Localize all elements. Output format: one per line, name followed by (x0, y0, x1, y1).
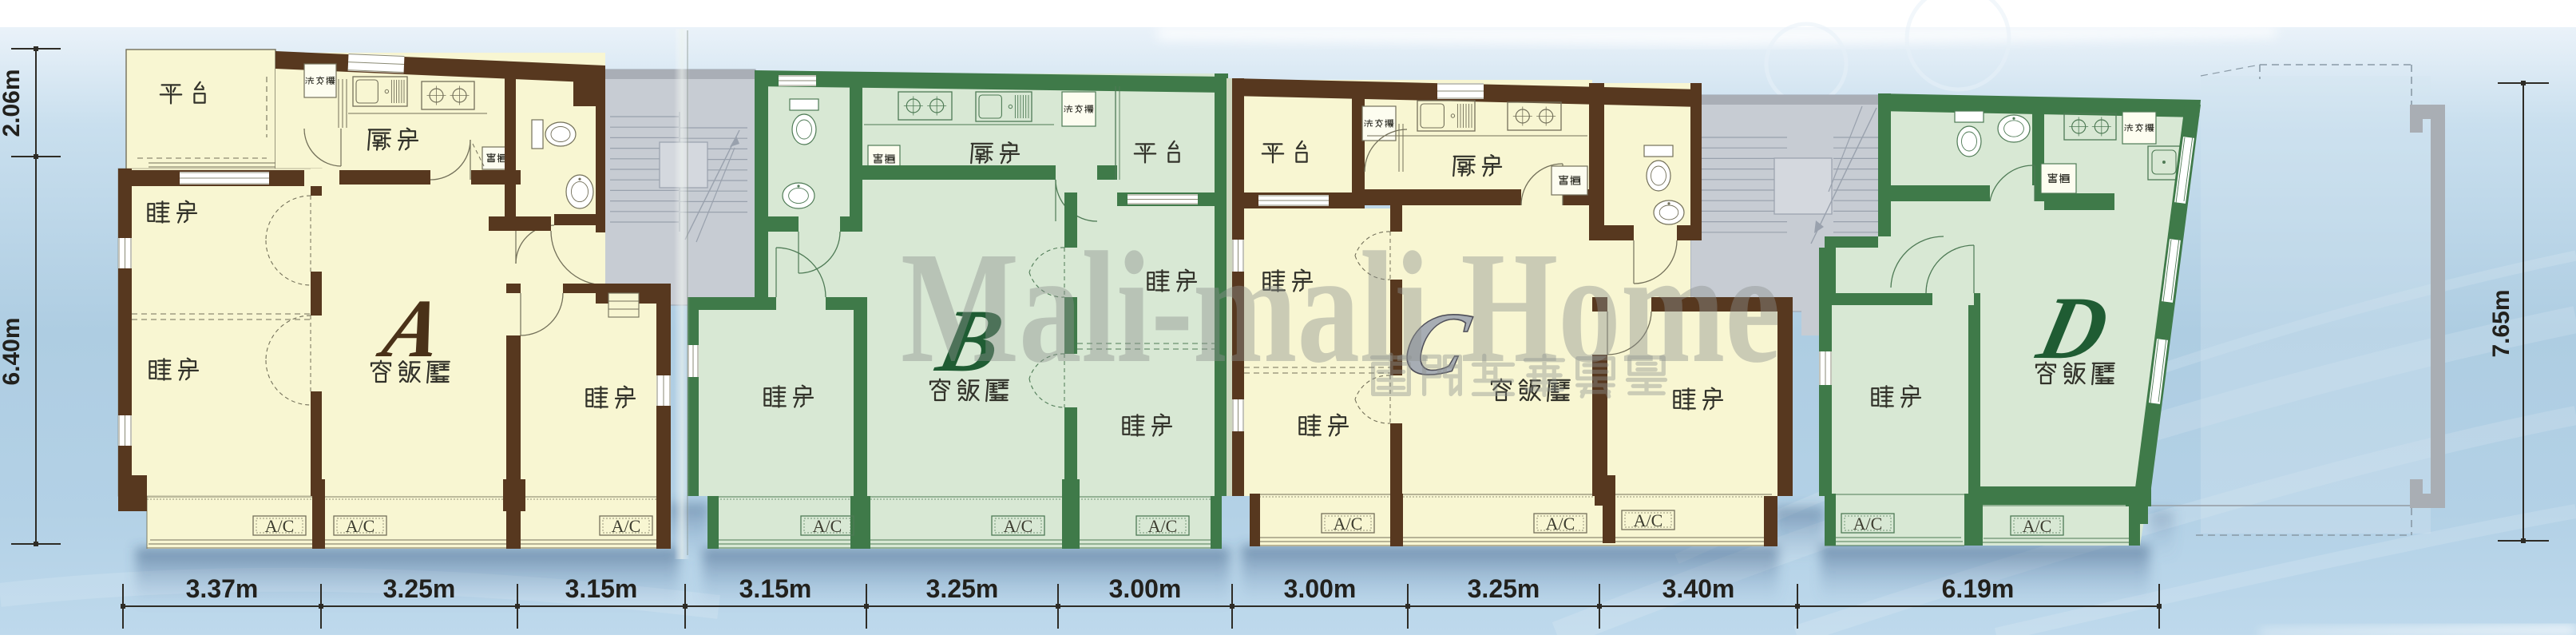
svg-text:6.40m: 6.40m (0, 317, 25, 385)
svg-text:3.15m: 3.15m (739, 574, 812, 603)
svg-text:2.06m: 2.06m (0, 69, 25, 137)
svg-text:A/C: A/C (1334, 514, 1363, 534)
svg-text:3.25m: 3.25m (1468, 574, 1540, 603)
svg-text:3.25m: 3.25m (926, 574, 999, 603)
svg-text:A/C: A/C (612, 516, 641, 536)
svg-text:A/C: A/C (265, 516, 295, 536)
svg-text:A/C: A/C (1546, 514, 1575, 534)
svg-text:3.40m: 3.40m (1663, 574, 1735, 603)
svg-text:A/C: A/C (813, 516, 842, 536)
svg-text:7.65m: 7.65m (2488, 289, 2515, 357)
svg-text:6.19m: 6.19m (1942, 574, 2015, 603)
svg-text:3.37m: 3.37m (186, 574, 259, 603)
svg-text:A/C: A/C (1634, 510, 1663, 530)
svg-text:A/C: A/C (2023, 516, 2052, 536)
svg-text:A/C: A/C (1853, 514, 1883, 534)
svg-text:A/C: A/C (346, 516, 375, 536)
svg-text:3.25m: 3.25m (383, 574, 456, 603)
svg-text:3.00m: 3.00m (1284, 574, 1357, 603)
svg-text:3.15m: 3.15m (565, 574, 638, 603)
svg-text:A/C: A/C (1148, 516, 1178, 536)
svg-text:3.00m: 3.00m (1109, 574, 1182, 603)
svg-text:A/C: A/C (1004, 516, 1033, 536)
